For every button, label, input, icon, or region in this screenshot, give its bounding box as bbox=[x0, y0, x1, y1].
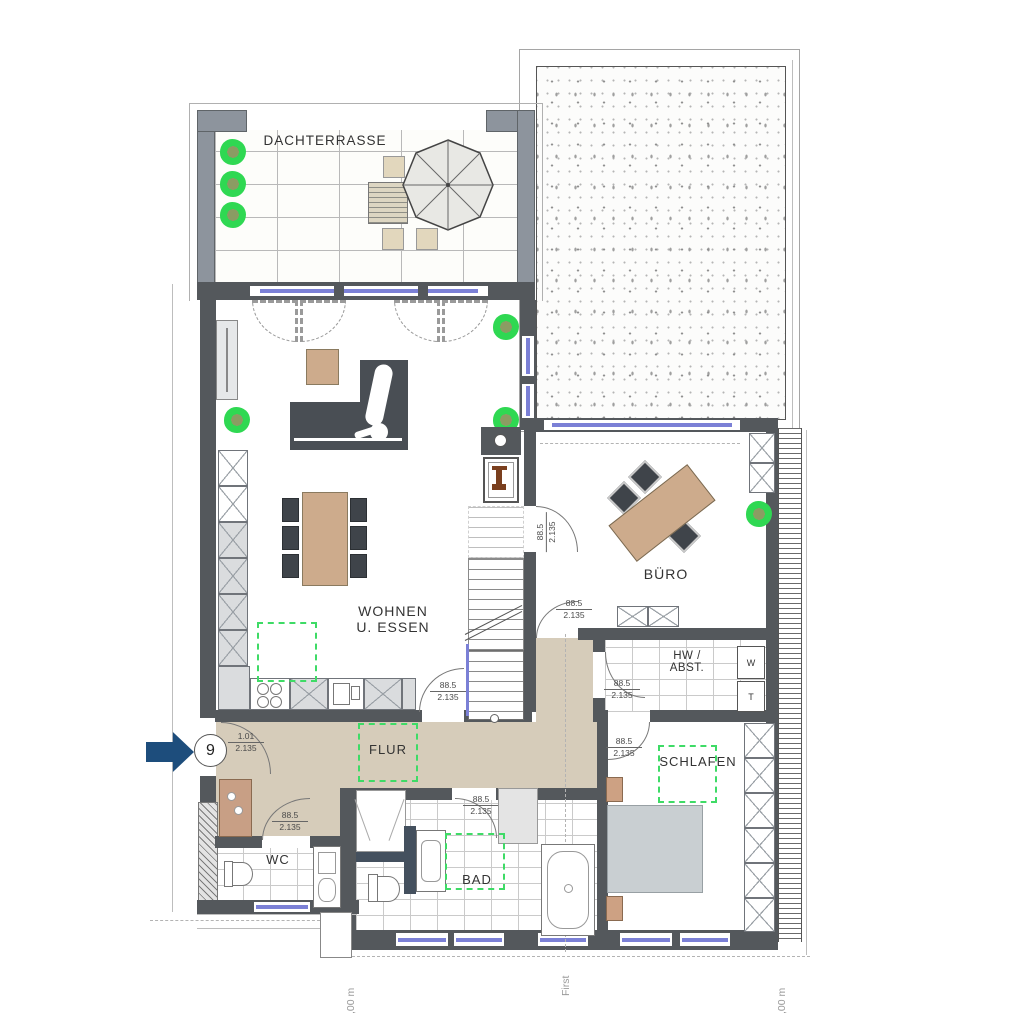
section-dashed-line bbox=[352, 956, 810, 958]
bed bbox=[607, 805, 703, 893]
entrance-arrow-icon bbox=[146, 732, 194, 772]
wardrobe bbox=[744, 898, 775, 932]
room-label-wohnen: WOHNEN U. ESSEN bbox=[343, 603, 443, 635]
section-dashed-line bbox=[150, 920, 320, 922]
wardrobe bbox=[744, 863, 775, 898]
room-label-buero: BÜRO bbox=[630, 566, 702, 582]
wall bbox=[578, 628, 775, 640]
floor-plan: DACHTERRASSE bbox=[0, 0, 1024, 1024]
ottoman bbox=[306, 349, 339, 385]
door-dimension: 88.5 2.135 bbox=[463, 794, 499, 816]
wardrobe bbox=[744, 723, 775, 758]
umbrella-icon bbox=[401, 138, 495, 232]
sink-faucet bbox=[351, 686, 360, 700]
office-sideboard bbox=[648, 606, 679, 627]
cooktop-burner bbox=[257, 696, 269, 708]
room-label-line: U. ESSEN bbox=[343, 619, 443, 635]
roof-edge-dashed-line bbox=[540, 443, 740, 445]
wall bbox=[197, 110, 215, 284]
living-window bbox=[522, 384, 534, 418]
wall bbox=[524, 428, 536, 506]
wardrobe bbox=[744, 758, 775, 793]
dryer-label: T bbox=[748, 692, 754, 702]
kitchen-cabinet bbox=[218, 486, 248, 522]
office-window bbox=[544, 420, 740, 430]
kitchen-cabinet bbox=[218, 630, 248, 666]
wall bbox=[593, 638, 605, 652]
plant-icon bbox=[224, 407, 250, 433]
stove-icon bbox=[492, 466, 507, 470]
bath-vanity-basin bbox=[421, 840, 441, 882]
sink-basin bbox=[333, 683, 350, 705]
kitchen-cabinet bbox=[290, 678, 328, 710]
wall bbox=[418, 284, 428, 298]
person-on-sofa bbox=[352, 358, 412, 454]
roof-outline-line bbox=[792, 60, 793, 432]
room-label-hw-abst: HW / ABST. bbox=[656, 650, 718, 674]
plant-icon bbox=[493, 314, 519, 340]
living-window bbox=[522, 336, 534, 376]
stairs-mid-flight bbox=[468, 558, 524, 650]
room-label-schlafen: SCHLAFEN bbox=[648, 754, 748, 769]
wc-window bbox=[254, 902, 310, 912]
wardrobe bbox=[744, 793, 775, 828]
door-swing-arc bbox=[442, 300, 488, 342]
kitchen-counter bbox=[402, 678, 416, 710]
wall bbox=[524, 552, 536, 712]
office-sideboard bbox=[617, 606, 648, 627]
nightstand bbox=[606, 777, 623, 802]
wall bbox=[197, 110, 247, 132]
stair-balustrade bbox=[466, 644, 469, 716]
stove-icon bbox=[492, 484, 506, 490]
gravel-roof bbox=[536, 66, 786, 420]
dryer: T bbox=[737, 681, 765, 712]
wall bbox=[200, 776, 216, 802]
bathtub-drain bbox=[564, 884, 573, 893]
exterior-stair bbox=[320, 912, 352, 958]
radiator-line bbox=[226, 328, 228, 392]
hatched-wall bbox=[198, 802, 218, 902]
kitchen-cabinet bbox=[218, 450, 248, 486]
door-swing-arc bbox=[300, 300, 346, 342]
door-dimension: 88.5 2.135 bbox=[272, 810, 308, 832]
nightstand bbox=[606, 896, 623, 921]
outline-line bbox=[172, 284, 173, 912]
office-desk bbox=[608, 464, 715, 562]
bath-window bbox=[396, 933, 448, 946]
dining-chair bbox=[350, 526, 367, 550]
plant-icon bbox=[220, 171, 246, 197]
room-label-flur: FLUR bbox=[358, 742, 418, 757]
kitchen-cabinet bbox=[364, 678, 402, 710]
room-label-wc: WC bbox=[256, 852, 300, 867]
chimney-flue bbox=[494, 434, 507, 447]
dining-chair bbox=[350, 554, 367, 578]
shower-partition bbox=[356, 852, 406, 862]
sideboard-bowl bbox=[227, 792, 236, 801]
plant-icon bbox=[220, 202, 246, 228]
unit-number: 9 bbox=[206, 742, 215, 760]
door-dimension: 1.01 2.135 bbox=[228, 731, 264, 753]
wall bbox=[334, 284, 344, 298]
plant-icon bbox=[220, 139, 246, 165]
cooktop-burner bbox=[270, 696, 282, 708]
dining-chair bbox=[282, 554, 299, 578]
office-cabinet bbox=[749, 463, 775, 493]
planned-kitchen-island bbox=[257, 622, 317, 682]
roof-hatch-strip bbox=[778, 428, 802, 942]
dining-table bbox=[302, 492, 348, 586]
stair-newel bbox=[490, 714, 499, 723]
room-label-line: HW / bbox=[656, 650, 718, 662]
outline-line bbox=[806, 430, 807, 955]
wardrobe bbox=[744, 828, 775, 863]
stove-icon bbox=[496, 468, 502, 484]
wc-washbasin-inner bbox=[318, 878, 336, 902]
outline-line bbox=[197, 928, 322, 929]
bath-window bbox=[454, 933, 504, 946]
door-swing-arc bbox=[252, 300, 298, 342]
door-dimension: 88.5 2.135 bbox=[604, 678, 640, 700]
wall bbox=[517, 110, 535, 284]
wall bbox=[593, 710, 608, 722]
dining-chair bbox=[282, 526, 299, 550]
stairs-lower-flight bbox=[468, 650, 524, 720]
toilet-bowl bbox=[232, 862, 253, 886]
kitchen-cabinet bbox=[218, 594, 248, 630]
stairs-upper-flight bbox=[468, 506, 524, 558]
shower-partition bbox=[404, 826, 416, 894]
door-dimension: 88.5 2.135 bbox=[535, 512, 557, 552]
bedroom-window bbox=[680, 933, 730, 946]
door-dimension: 88.5 2.135 bbox=[606, 736, 642, 758]
washer-label: W bbox=[747, 658, 756, 668]
section-label-right: ,00 m bbox=[776, 988, 788, 1014]
room-label-dachterrasse: DACHTERRASSE bbox=[252, 133, 398, 148]
wall bbox=[215, 836, 262, 848]
section-label-first: First bbox=[560, 976, 572, 996]
room-label-line: WOHNEN bbox=[343, 603, 443, 619]
wc-washbasin-inner bbox=[318, 852, 336, 874]
kitchen-cabinet bbox=[218, 558, 248, 594]
room-label-line: ABST. bbox=[656, 662, 718, 674]
kitchen-counter bbox=[218, 666, 250, 710]
washer: W bbox=[737, 646, 765, 679]
wall bbox=[200, 300, 216, 718]
kitchen-cabinet bbox=[218, 522, 248, 558]
section-label-left: ,00 m bbox=[345, 988, 357, 1014]
dining-chair bbox=[350, 498, 367, 522]
terrace-sliding-door-window bbox=[250, 286, 488, 296]
bedroom-window bbox=[620, 933, 672, 946]
cooktop-burner bbox=[270, 683, 282, 695]
door-swing-arc bbox=[394, 300, 440, 342]
bath-toilet-bowl bbox=[377, 876, 400, 902]
room-label-bad: BAD bbox=[455, 872, 499, 887]
plant-icon bbox=[746, 501, 772, 527]
wall bbox=[215, 710, 422, 722]
dining-chair bbox=[282, 498, 299, 522]
sideboard-bowl bbox=[234, 806, 243, 815]
door-dimension: 88.5 2.135 bbox=[556, 598, 592, 620]
door-dimension: 88.5 2.135 bbox=[430, 680, 466, 702]
office-cabinet bbox=[749, 433, 775, 463]
cooktop-burner bbox=[257, 683, 269, 695]
